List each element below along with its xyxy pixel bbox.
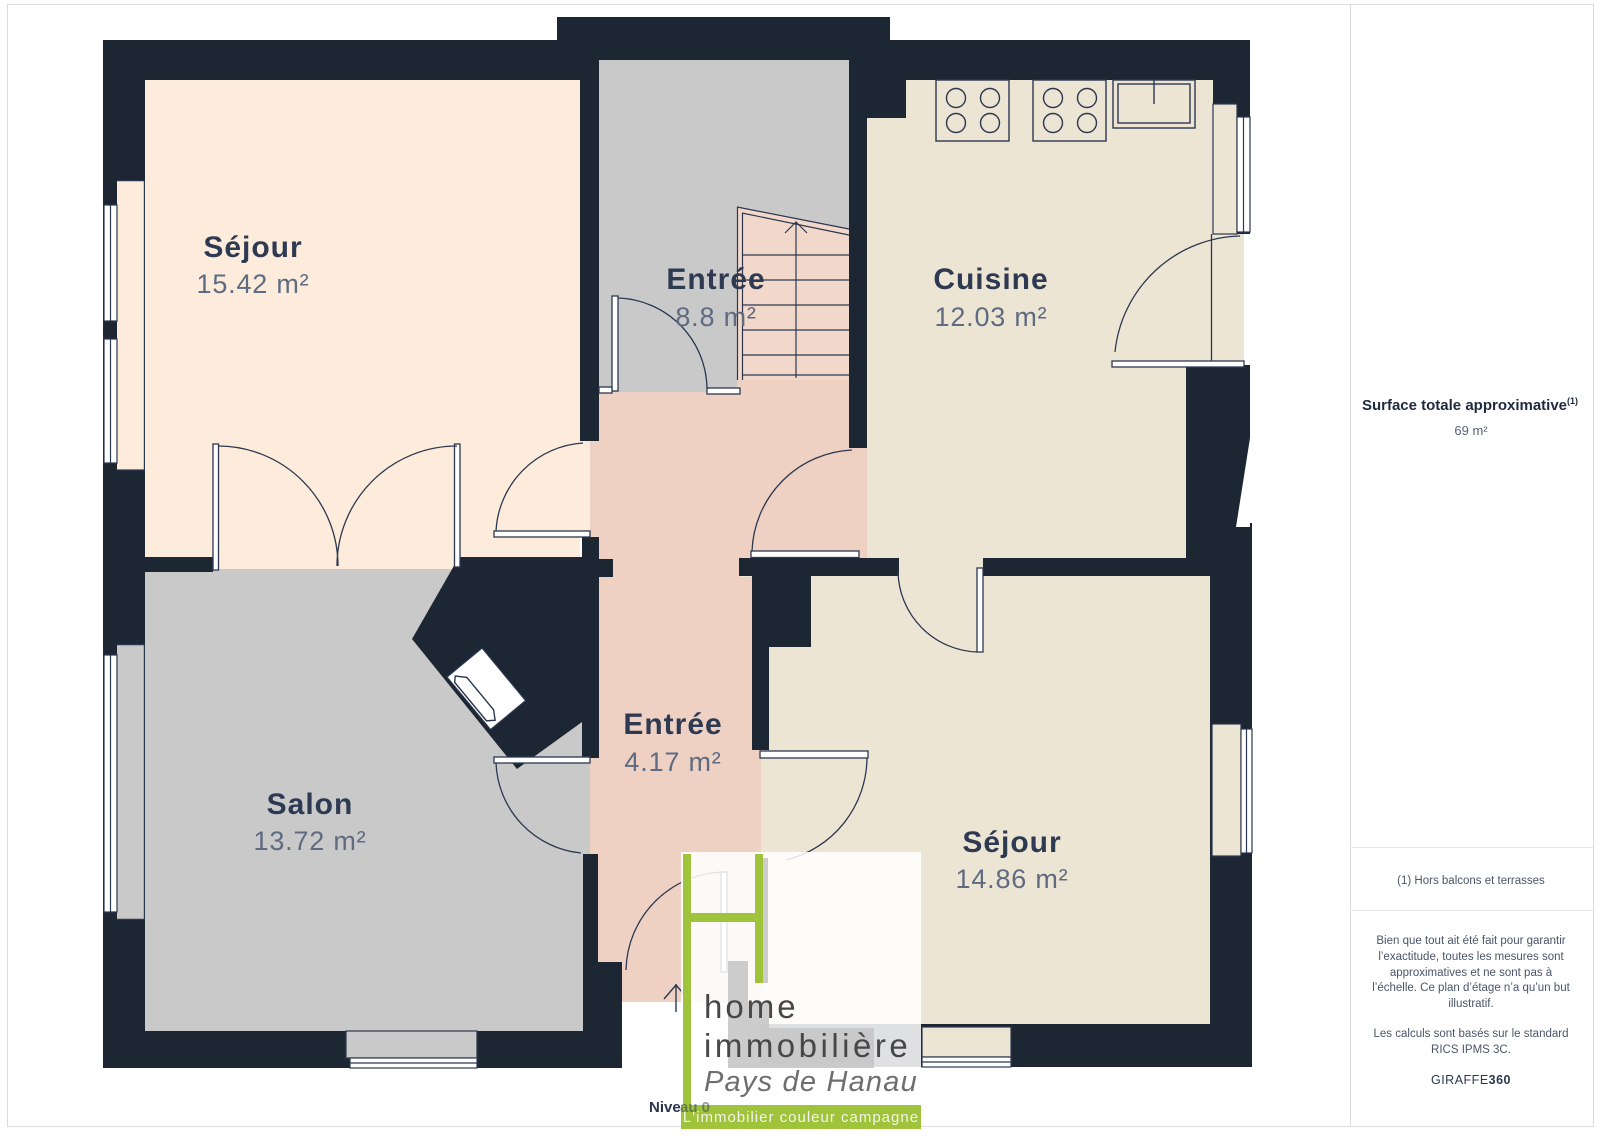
svg-text:Séjour: Séjour xyxy=(962,826,1061,859)
svg-text:Nive: Nive xyxy=(649,1099,681,1116)
svg-text:12.03 m²: 12.03 m² xyxy=(935,302,1048,332)
svg-text:Surface totale approximative(1: Surface totale approximative(1) xyxy=(1362,396,1578,414)
svg-text:immobilière: immobilière xyxy=(704,1027,911,1064)
svg-text:approximatives et ne sont pas: approximatives et ne sont pas à xyxy=(1390,967,1553,979)
svg-text:69 m²: 69 m² xyxy=(1454,423,1488,438)
svg-text:14.86 m²: 14.86 m² xyxy=(956,864,1069,894)
svg-text:GIRAFFE360: GIRAFFE360 xyxy=(1431,1073,1511,1087)
svg-text:l’exactitude, toutes les mesur: l’exactitude, toutes les mesures sont xyxy=(1378,951,1564,963)
svg-text:Les calculs sont basés sur le: Les calculs sont basés sur le standard xyxy=(1374,1028,1569,1040)
svg-text:illustratif.: illustratif. xyxy=(1448,998,1493,1010)
svg-text:Cuisine: Cuisine xyxy=(933,263,1048,296)
svg-text:Salon: Salon xyxy=(267,788,354,821)
svg-text:Séjour: Séjour xyxy=(203,231,302,264)
svg-text:Bien que tout ait été fait pou: Bien que tout ait été fait pour garantir xyxy=(1376,935,1565,947)
svg-text:l’échelle. Ce plan d’étage n’a: l’échelle. Ce plan d’étage n’a qu’un but xyxy=(1372,982,1570,994)
svg-text:home: home xyxy=(704,988,799,1025)
svg-text:Entrée: Entrée xyxy=(623,708,722,741)
svg-text:Entrée: Entrée xyxy=(666,263,765,296)
svg-text:(1) Hors balcons et terrasses: (1) Hors balcons et terrasses xyxy=(1397,875,1545,887)
svg-text:Pays de Hanau: Pays de Hanau xyxy=(704,1066,918,1098)
svg-text:4.17 m²: 4.17 m² xyxy=(624,747,721,777)
svg-text:au 0: au 0 xyxy=(680,1099,710,1116)
svg-text:13.72 m²: 13.72 m² xyxy=(254,826,367,856)
svg-text:L'immobilier couleur campagne: L'immobilier couleur campagne xyxy=(683,1109,919,1126)
svg-text:15.42 m²: 15.42 m² xyxy=(197,269,310,299)
svg-text:RICS IPMS 3C.: RICS IPMS 3C. xyxy=(1431,1044,1511,1056)
svg-text:8.8 m²: 8.8 m² xyxy=(675,302,756,332)
